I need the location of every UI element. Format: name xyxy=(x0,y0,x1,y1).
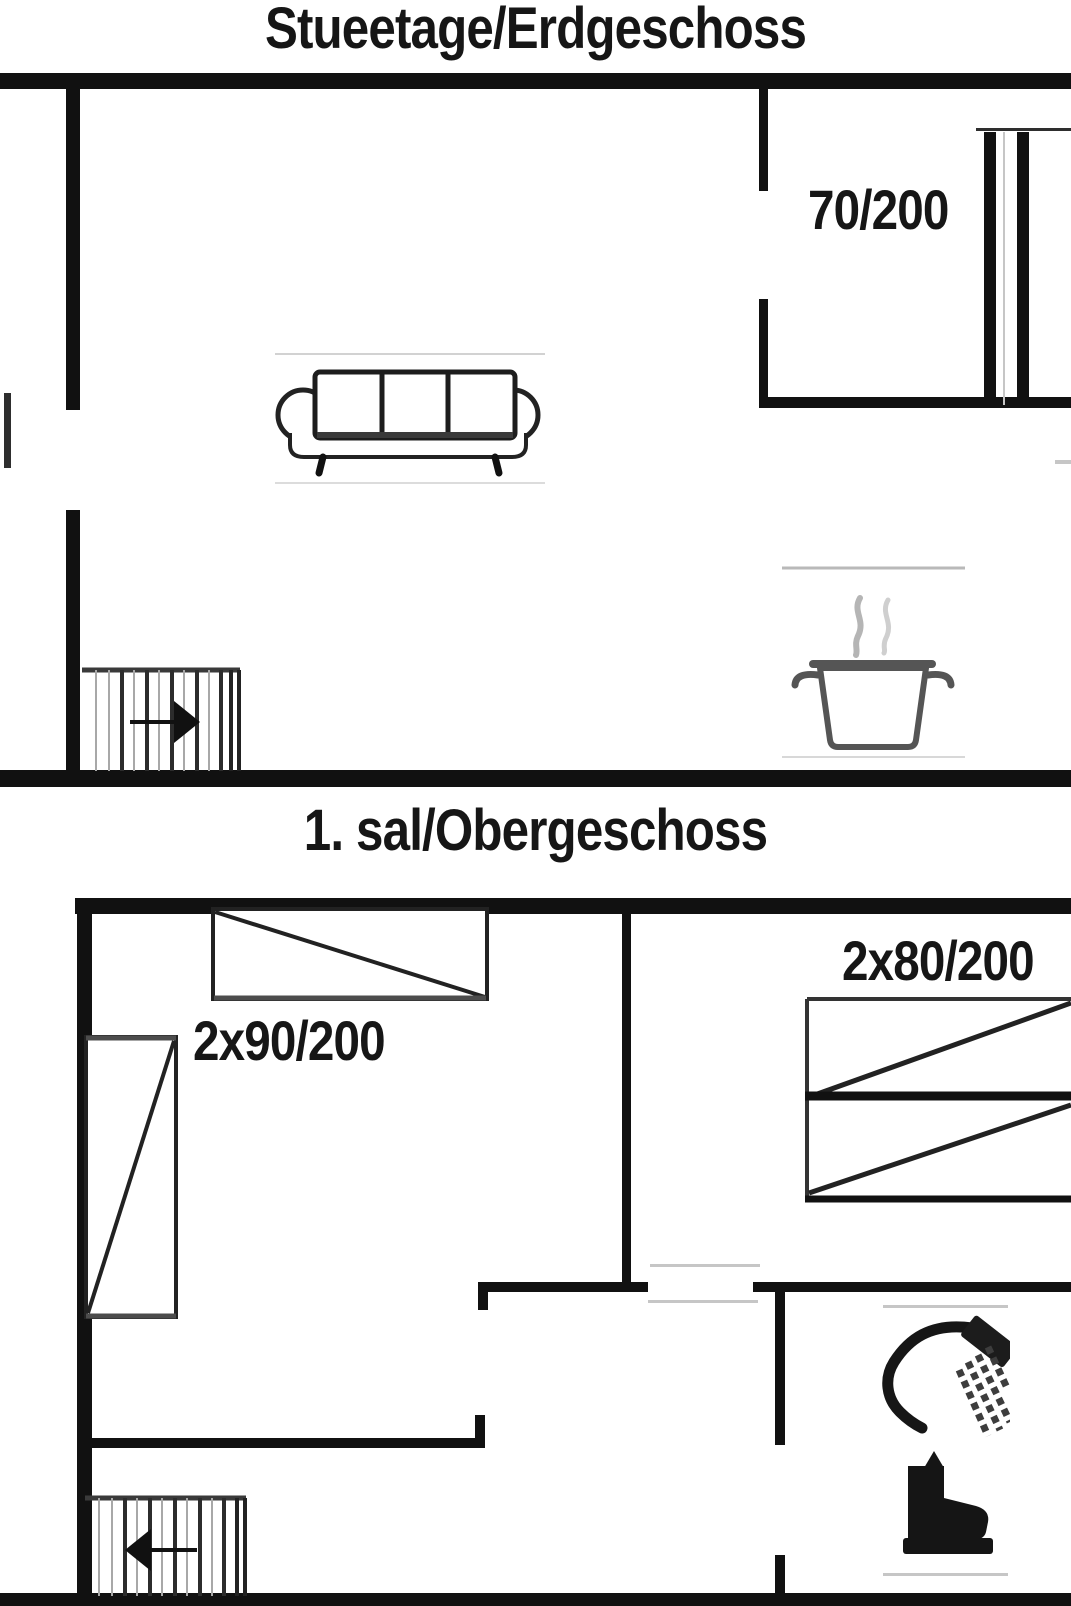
single-bed-icon xyxy=(83,1033,179,1323)
bunk-bed-label: 2x80/200 xyxy=(842,933,1034,989)
ff-hall-wall-stub xyxy=(478,1282,488,1310)
gf-door-size-label: 70/200 xyxy=(808,182,948,238)
ff-bath-top-wall xyxy=(753,1282,1071,1292)
ff-bath-line-bottom xyxy=(883,1573,1008,1576)
double-bed-icon xyxy=(210,906,490,1004)
shower-icon xyxy=(860,1300,1010,1445)
ff-center-wall xyxy=(622,914,631,1287)
ff-lower-wall xyxy=(77,1438,485,1448)
gf-closet-left-line xyxy=(984,132,996,405)
gf-closet-right-line xyxy=(1017,132,1029,405)
floorplan-document: Stueetage/Erdgeschoss 70/200 xyxy=(0,0,1071,1606)
first-floor-title: 1. sal/Obergeschoss xyxy=(80,802,990,860)
gf-closet-top-line xyxy=(976,128,1071,131)
gf-room-wall-lower xyxy=(759,299,768,405)
gf-closet-mid-line xyxy=(1003,132,1005,405)
gf-left-wall-lower xyxy=(66,510,80,772)
double-bed-label: 2x90/200 xyxy=(193,1013,385,1069)
sofa-icon xyxy=(268,345,548,485)
gf-room-wall-upper xyxy=(759,73,768,191)
ff-opening-line-b xyxy=(648,1300,758,1303)
gf-right-edge-mark xyxy=(1055,460,1071,464)
bunk-bed-icon xyxy=(803,993,1071,1205)
ff-bath-door-stub xyxy=(775,1555,785,1597)
gf-bottom-wall xyxy=(0,770,1071,787)
ground-floor-title: Stueetage/Erdgeschoss xyxy=(80,0,990,58)
toilet-icon xyxy=(898,1448,998,1566)
ff-hall-wall xyxy=(478,1282,648,1292)
ff-bath-left-wall xyxy=(775,1287,785,1445)
gf-entrance-door-mark xyxy=(4,393,11,468)
cooking-pot-icon xyxy=(768,556,968,761)
gf-left-wall-upper xyxy=(66,73,80,410)
gf-top-wall xyxy=(0,73,1071,89)
stairs-up-icon xyxy=(80,666,242,772)
ff-lower-wall-stub xyxy=(475,1415,485,1448)
stairs-down-icon xyxy=(83,1494,248,1597)
ff-opening-line-a xyxy=(650,1264,760,1267)
